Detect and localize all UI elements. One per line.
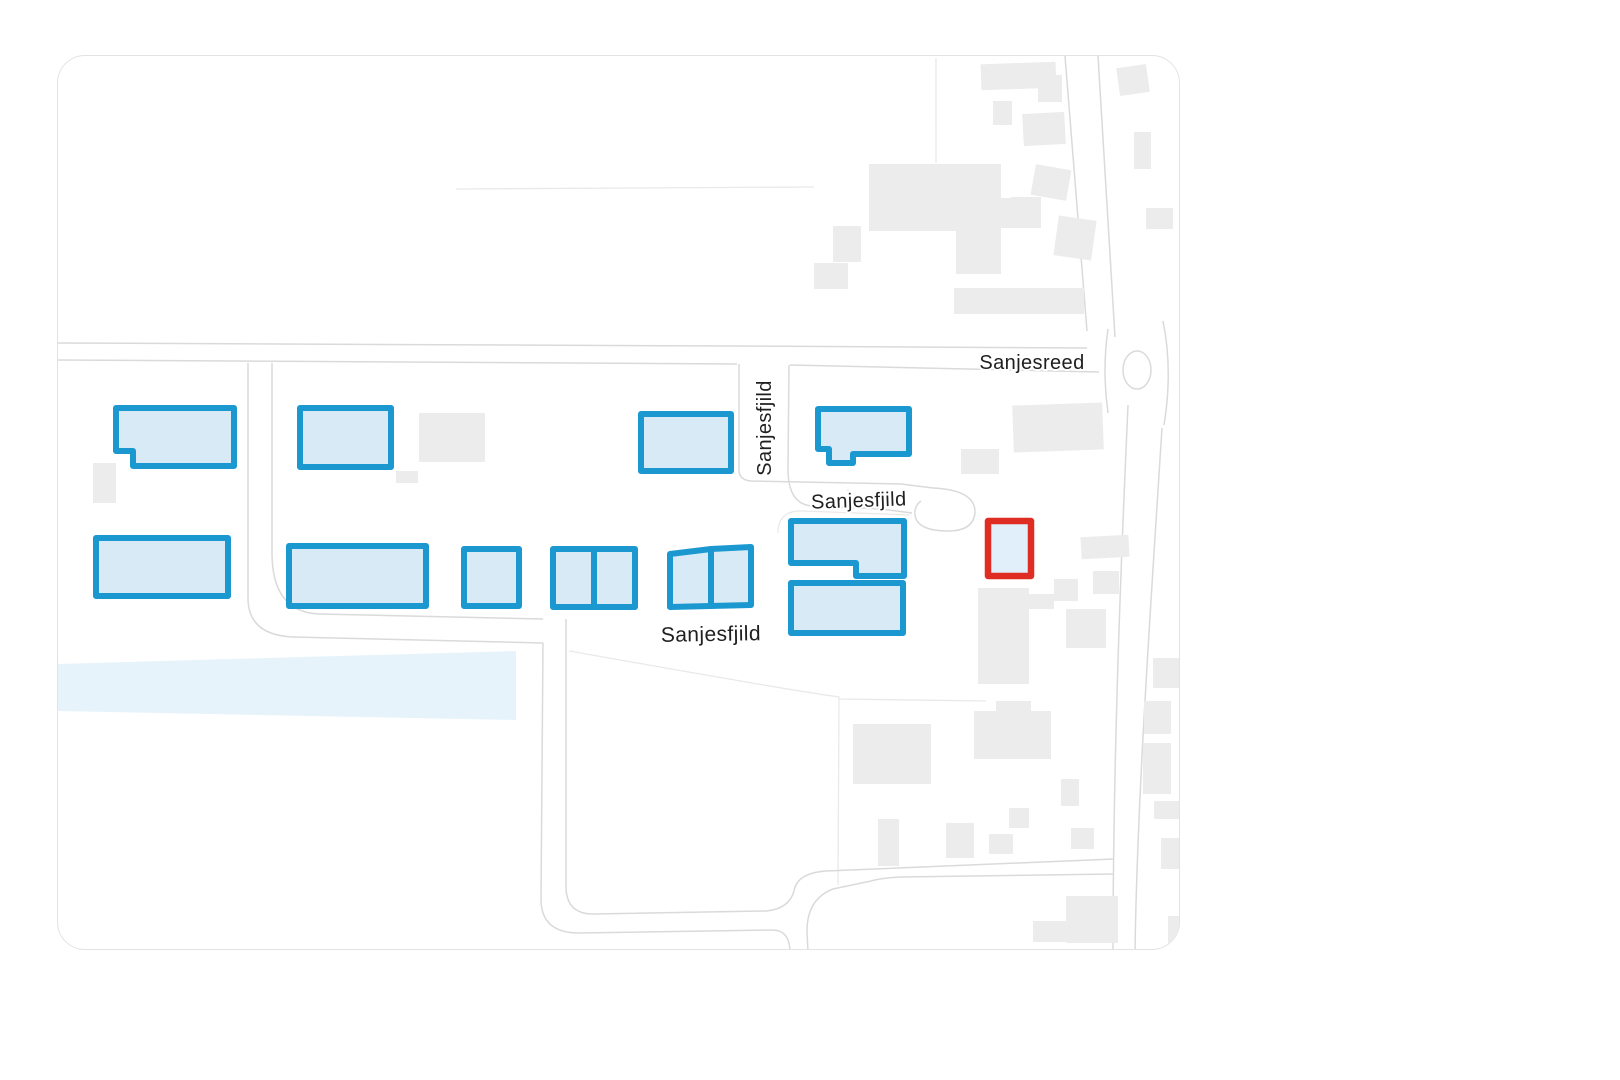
building-footprint	[833, 226, 861, 262]
building-footprint	[1080, 535, 1129, 559]
highlighted-building[interactable]	[791, 583, 903, 633]
selected-building[interactable]	[988, 521, 1031, 576]
building-footprint	[1154, 801, 1180, 819]
road-line	[1105, 329, 1108, 413]
road-line	[541, 643, 790, 950]
street-label: Sanjesfjild	[661, 622, 762, 647]
building-footprint	[1071, 828, 1094, 849]
building-footprint	[1011, 197, 1041, 228]
street-label: Sanjesfjild	[811, 488, 907, 513]
highlighted-building[interactable]	[116, 408, 234, 466]
highlighted-building[interactable]	[464, 549, 519, 606]
highlighted-building[interactable]	[791, 521, 904, 576]
building-footprint	[961, 449, 999, 474]
building-footprint	[1033, 921, 1068, 942]
road-line	[566, 619, 1114, 914]
building-footprint	[946, 823, 974, 858]
building-footprint	[1093, 571, 1119, 594]
street-label: Sanjesfjild	[754, 380, 776, 476]
building-footprint	[814, 263, 848, 289]
building-footprint	[1031, 164, 1072, 201]
building-footprint	[1022, 112, 1066, 146]
building-footprint	[1146, 208, 1173, 229]
building-footprint	[996, 701, 1031, 713]
road-line	[1113, 405, 1128, 950]
building-footprint	[1054, 579, 1078, 601]
map-card: SanjesreedSanjesfjildSanjesfjildSanjesfj…	[57, 55, 1180, 950]
building-footprint	[1168, 916, 1180, 948]
building-footprint	[93, 463, 116, 503]
building-footprint	[1021, 594, 1054, 609]
building-footprint	[993, 101, 1012, 125]
building-footprint	[1066, 896, 1118, 943]
road-line	[58, 360, 737, 364]
map-canvas[interactable]: SanjesreedSanjesfjildSanjesfjildSanjesfj…	[58, 56, 1180, 950]
building-footprint	[956, 231, 1001, 274]
building-footprint	[419, 413, 485, 462]
building-footprint	[1161, 838, 1180, 869]
road-line	[1163, 321, 1168, 425]
road-line	[915, 488, 975, 531]
parcel-line	[569, 651, 839, 885]
highlighted-building[interactable]	[641, 414, 731, 471]
building-footprint	[989, 834, 1013, 854]
building-footprint	[954, 288, 1084, 314]
building-footprint	[1144, 701, 1171, 734]
highlighted-building[interactable]	[96, 538, 228, 596]
water-area	[58, 651, 516, 720]
building-footprint	[1061, 779, 1079, 806]
building-footprint	[396, 471, 418, 483]
building-footprint	[1066, 609, 1106, 648]
building-footprint	[878, 819, 899, 866]
highlighted-building[interactable]	[289, 546, 426, 606]
building-footprint	[1116, 64, 1150, 96]
building-footprint	[1012, 402, 1104, 452]
building-footprint	[853, 724, 931, 784]
road-line	[1098, 56, 1115, 337]
building-footprint	[1143, 743, 1171, 794]
building-footprint	[1153, 658, 1180, 688]
building-footprint	[1134, 132, 1151, 169]
road-line	[1135, 428, 1162, 950]
street-label: Sanjesreed	[979, 352, 1084, 374]
parcel-line	[839, 699, 986, 701]
highlighted-building[interactable]	[300, 408, 391, 467]
parcel-line	[456, 187, 814, 189]
building-footprint	[1038, 75, 1062, 102]
roundabout-circle	[1123, 351, 1151, 389]
building-footprint	[1009, 808, 1029, 828]
highlighted-building[interactable]	[818, 409, 909, 463]
building-footprint	[974, 711, 1051, 759]
road-line	[58, 343, 1087, 348]
building-footprint	[869, 164, 1001, 231]
building-footprint	[1053, 216, 1096, 261]
